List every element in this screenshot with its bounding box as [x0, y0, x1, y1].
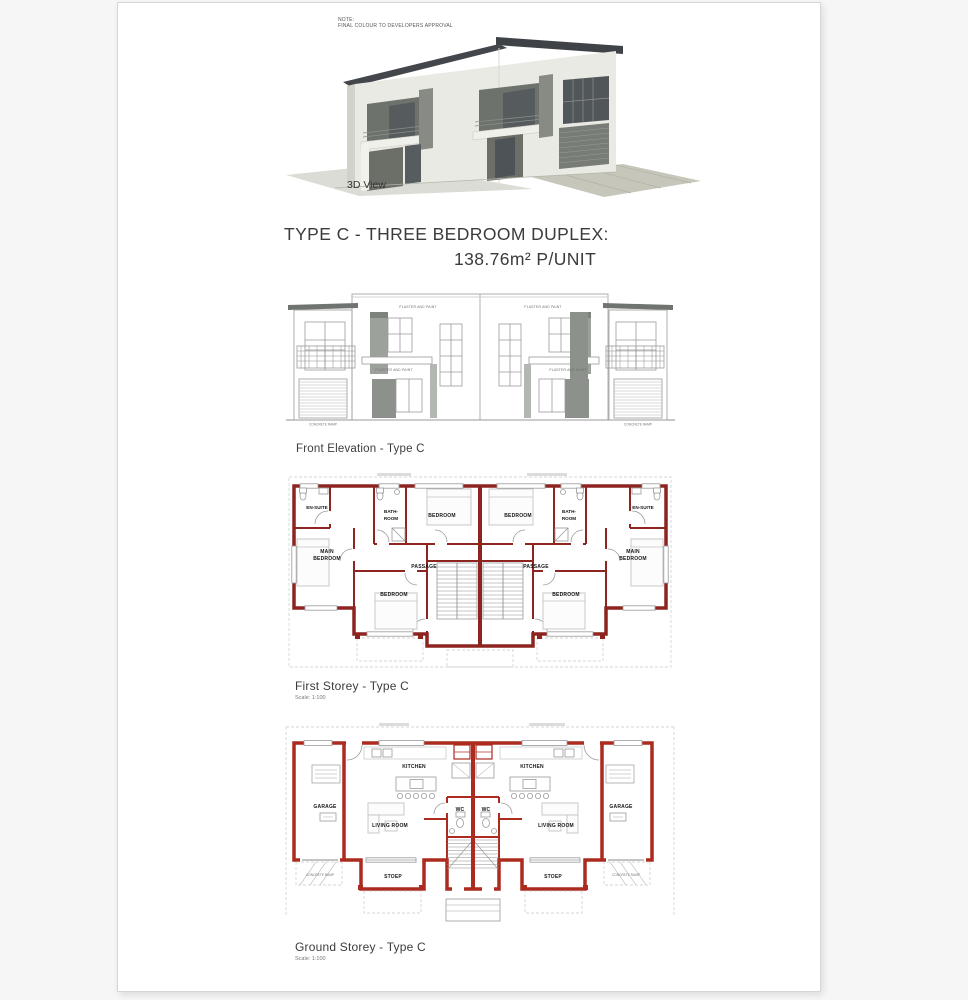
- bar-stool: [429, 793, 434, 798]
- room-label-main-left2: BEDROOM: [313, 556, 341, 562]
- stoep-post: [358, 885, 363, 890]
- balcony-railing-bars: [297, 346, 355, 368]
- first-storey-scale: Scale: 1:100: [295, 695, 326, 701]
- entrance-canopy: [362, 357, 432, 364]
- elevation-caption: Front Elevation - Type C: [296, 443, 425, 455]
- basin: [395, 490, 400, 495]
- window: [292, 546, 296, 583]
- bar-stool: [405, 793, 410, 798]
- room-label-bath-left2: ROOM: [384, 516, 398, 521]
- cistern: [377, 488, 384, 493]
- first-storey-plan: EN-SUITE EN-SUITE MAIN BEDROOM MAIN BEDR…: [287, 471, 673, 676]
- ground-storey-scale: Scale: 1:100: [295, 956, 326, 962]
- ground-window-unit1: [405, 144, 421, 184]
- first-storey-caption: First Storey - Type C: [295, 679, 409, 693]
- sheet-title: TYPE C - THREE BEDROOM DUPLEX: 138.76m² …: [284, 222, 724, 272]
- window: [300, 484, 318, 488]
- entry-porch: [446, 899, 500, 921]
- entrance-door: [372, 379, 396, 418]
- feature-panel-cap: [370, 312, 388, 318]
- room-label-bath-right: BATH-: [562, 509, 576, 514]
- room-label-living-right: LIVING ROOM: [538, 823, 574, 829]
- ramp-label-right: CONCRETE RAMP: [612, 873, 640, 877]
- window: [305, 606, 337, 610]
- document-page-background: { "page": { "note": { "line1": "NOTE:", …: [0, 0, 968, 1000]
- upper-window-mullions: [388, 318, 412, 352]
- feature-pillar-2: [539, 74, 553, 138]
- drawing-sheet: NOTE: FINAL COLOUR TO DEVELOPERS APPROVA…: [117, 2, 821, 992]
- room-label-wc-left: WC: [456, 807, 465, 813]
- plaster-label-1: PLASTER AND PAINT: [399, 305, 436, 309]
- basin: [319, 488, 328, 494]
- ramp-caption-right: CONCRETE RAMP: [624, 423, 652, 427]
- room-label-living-left: LIVING ROOM: [372, 823, 408, 829]
- garage-door-slats: [299, 382, 347, 415]
- view3d-label: 3D View: [347, 179, 386, 191]
- title-line1: TYPE C - THREE BEDROOM DUPLEX:: [284, 222, 724, 247]
- bed-top: [427, 489, 471, 525]
- right-dark-band: [570, 312, 588, 418]
- facade-left-return: [347, 84, 355, 188]
- balcony-glass-unit1: [389, 102, 415, 142]
- window: [367, 632, 413, 636]
- cistern: [300, 488, 307, 493]
- room-label-bath-left: BATH-: [384, 509, 398, 514]
- room-label-en-suite-right: EN-SUITE: [632, 505, 653, 510]
- sink-bowl: [372, 749, 381, 757]
- window: [379, 484, 399, 488]
- room-label-garage-left: GARAGE: [313, 804, 337, 810]
- ramp-label-left: CONCRETE RAMP: [306, 873, 334, 877]
- room-label-stoep-right: STOEP: [544, 874, 562, 880]
- bar-stool: [397, 793, 402, 798]
- roof-right: [496, 37, 623, 54]
- room-label-kitchen-right: KITCHEN: [520, 764, 544, 770]
- balcony-outline-dashed: [357, 638, 423, 661]
- garage-window: [304, 741, 332, 746]
- kitchen-window: [379, 741, 424, 746]
- room-label-bedroom-botright: BEDROOM: [552, 592, 580, 598]
- dim-text-mark-1: [379, 723, 409, 726]
- garage-wing-outline: [294, 310, 352, 420]
- bed-main: [297, 539, 329, 586]
- balcony-railing-frame: [297, 346, 355, 368]
- dim-text-mark-1: [377, 473, 411, 476]
- room-label-en-suite-left: EN-SUITE: [306, 505, 327, 510]
- bar-stool: [413, 793, 418, 798]
- door-gap: [352, 549, 356, 561]
- 3d-view-rendering: [271, 25, 701, 197]
- stoep-paving-dashed: [364, 891, 421, 913]
- ground-storey-caption: Ground Storey - Type C: [295, 940, 426, 954]
- room-label-passage-left: PASSAGE: [411, 564, 437, 570]
- plaster-label-2: PLASTER AND PAINT: [524, 305, 561, 309]
- window: [415, 484, 463, 488]
- balcony-post: [355, 634, 360, 639]
- feature-pillar-1: [419, 88, 433, 150]
- room-label-kitchen-left: KITCHEN: [402, 764, 426, 770]
- wc-door-gap: [445, 803, 449, 813]
- porch-steps: [446, 905, 500, 911]
- stoep-post: [419, 885, 424, 890]
- sofa: [368, 803, 404, 815]
- door-gap: [425, 619, 429, 631]
- wing-roof-slab: [288, 303, 358, 310]
- bed-bottom: [375, 593, 417, 629]
- dim-text-mark-2: [527, 473, 567, 476]
- room-label-bedroom-botleft: BEDROOM: [380, 592, 408, 598]
- plaster-label-4: PLASTER AND PAINT: [549, 368, 586, 372]
- balcony-post: [418, 634, 423, 639]
- room-label-main-right2: BEDROOM: [619, 556, 647, 562]
- elevation-left-unit: [288, 303, 462, 420]
- room-label-bedroom-topleft: BEDROOM: [428, 513, 456, 519]
- title-line2: 138.76m² P/UNIT: [284, 247, 724, 272]
- bar-stool: [421, 793, 426, 798]
- stair-window-grid: [440, 324, 462, 386]
- entrance-door-swing: [347, 745, 362, 760]
- entry-walkway-dashed: [447, 650, 513, 667]
- kitchen-island: [396, 777, 436, 791]
- room-label-garage-right: GARAGE: [609, 804, 633, 810]
- ground-storey-plan: GARAGE GARAGE KITCHEN KITCHEN LIVING ROO…: [284, 719, 677, 939]
- room-label-wc-right: WC: [482, 807, 491, 813]
- wc-door-swing: [434, 803, 445, 814]
- feature-panel: [370, 312, 388, 374]
- room-label-main-left: MAIN: [320, 549, 334, 555]
- door-gap: [328, 511, 332, 524]
- room-label-bedroom-topright: BEDROOM: [504, 513, 532, 519]
- plaster-label-3: PLASTER AND PAINT: [375, 368, 412, 372]
- room-label-bath-right2: ROOM: [562, 516, 576, 521]
- front-elevation-drawing: PLASTER AND PAINT PLASTER AND PAINT PLAS…: [284, 284, 677, 436]
- wc-toilet: [457, 819, 464, 828]
- door-unit2: [495, 137, 515, 178]
- door-gap: [377, 542, 389, 546]
- door-gap: [435, 542, 447, 546]
- sink-bowl: [383, 749, 392, 757]
- dim-text-mark-2: [529, 723, 565, 726]
- room-label-main-right: MAIN: [626, 549, 640, 555]
- room-label-stoep-left: STOEP: [384, 874, 402, 880]
- wc-basin: [450, 829, 455, 834]
- ramp-caption-left: CONCRETE RAMP: [309, 423, 337, 427]
- porch-pillar: [430, 364, 437, 418]
- room-label-passage-right: PASSAGE: [523, 564, 549, 570]
